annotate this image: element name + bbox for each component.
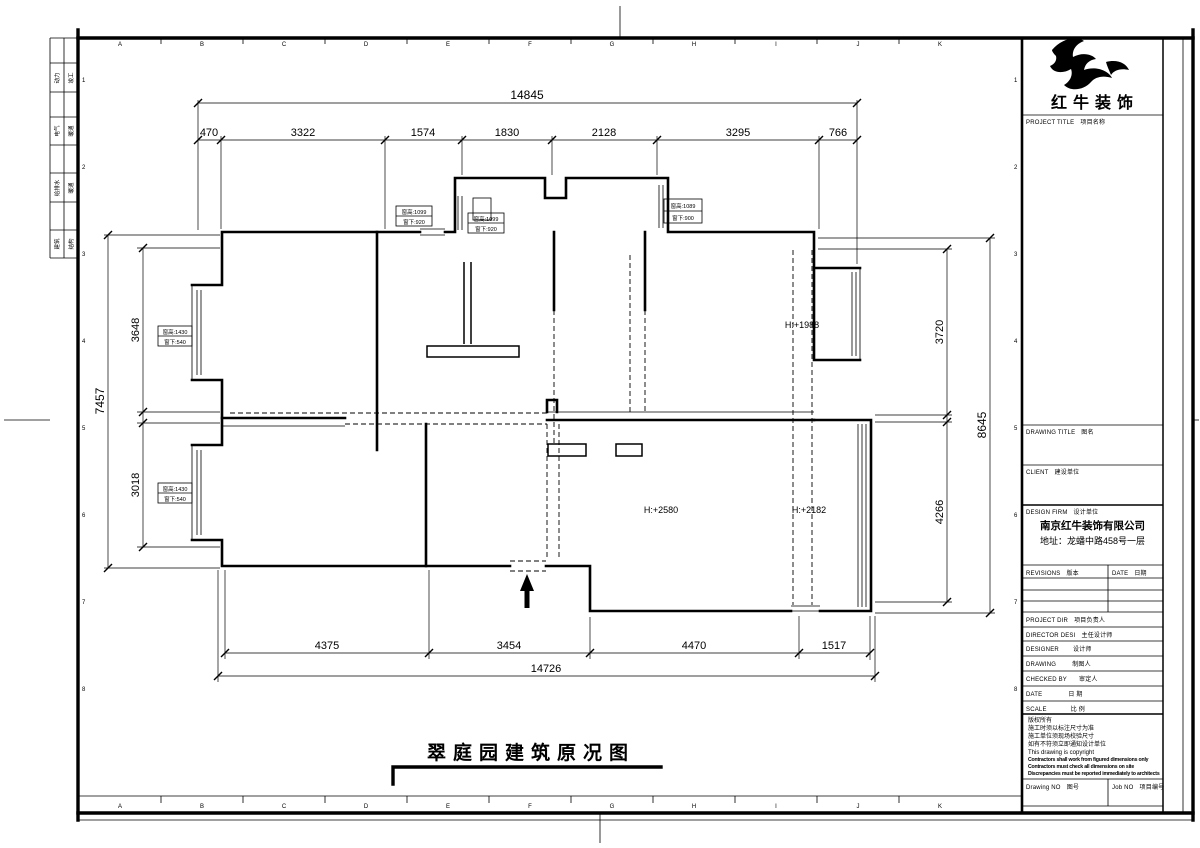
director-row: DIRECTOR DESI主任设计师: [1026, 630, 1113, 639]
ruler-number: 7: [82, 600, 86, 606]
window-tag-line: 窗高:1099: [474, 215, 499, 223]
ruler-letter: G: [610, 804, 615, 810]
label-en: PROJECT TITLE: [1026, 120, 1074, 126]
copyright-line: This drawing is copyright: [1028, 749, 1158, 757]
window-glass: [420, 185, 866, 611]
copyright-line-en: Contractors shall work from figured dime…: [1028, 757, 1158, 764]
dim-value: 470: [200, 127, 218, 139]
bay-window: [852, 268, 860, 360]
label-cn: 建设单位: [1055, 470, 1080, 476]
ruler-letter: C: [282, 804, 287, 810]
drawing-row: DRAWING制图人: [1026, 659, 1091, 668]
label-en: DESIGN FIRM: [1026, 510, 1068, 516]
ruler-letter: F: [528, 804, 532, 810]
ruler-letter: G: [610, 42, 615, 48]
label-cn: 项目编号: [1140, 785, 1165, 791]
ruler-letter: K: [938, 42, 942, 48]
label-en: DRAWING: [1026, 662, 1056, 668]
copyright-line: 施工单位须现场校验尺寸: [1028, 733, 1158, 741]
drawing-sheet: { "brand": { "company": "红牛装饰" }, "drawi…: [0, 0, 1200, 848]
copyright-line: 如有不符须立即通知设计单位: [1028, 741, 1158, 749]
ruler-number: 3: [1014, 252, 1018, 258]
dim-value: 766: [829, 127, 847, 139]
ruler-letter: J: [857, 804, 860, 810]
dim-value: 4470: [682, 640, 706, 652]
project-title-row: PROJECT TITLE项目名称: [1026, 117, 1105, 126]
ruler-number: 5: [1014, 426, 1018, 432]
ruler-number: 4: [1014, 339, 1018, 345]
dim-value: 1517: [822, 640, 846, 652]
interior-wall: [222, 232, 814, 566]
designer-row: DESIGNER设计师: [1026, 644, 1092, 653]
window-tag-line: 窗下:900: [672, 214, 694, 222]
date-col-header: DATE日期: [1112, 568, 1147, 577]
strip-label: 动力: [53, 72, 61, 83]
dim-value: 3295: [726, 127, 750, 139]
wall-stubs: [427, 198, 642, 456]
date-row: DATE日 期: [1026, 689, 1083, 698]
ruler-number: 5: [82, 426, 86, 432]
ruler-letter: H: [692, 804, 696, 810]
strip-label: 电气: [53, 125, 61, 137]
ruler-number: 1: [1014, 78, 1018, 84]
height-label: H:+2182: [792, 505, 826, 515]
window-tag-line: 窗下:920: [403, 218, 425, 226]
label-cn: 项目名称: [1080, 120, 1105, 126]
scale-row: SCALE比 例: [1026, 704, 1085, 713]
label-en: SCALE: [1026, 707, 1047, 713]
copyright-line: 施工时须以标注尺寸为准: [1028, 725, 1158, 733]
label-en: PROJECT DIR: [1026, 618, 1068, 624]
title-underline: [393, 767, 661, 784]
label-en: DESIGNER: [1026, 647, 1059, 653]
label-en: Job NO: [1112, 785, 1134, 791]
label-en: DATE: [1026, 692, 1042, 698]
bottom-ruler: A B C D E F G H I J K: [118, 796, 942, 810]
dim-value: 3720: [934, 320, 946, 344]
label-cn: 图号: [1067, 785, 1079, 791]
label-cn: 设计单位: [1074, 510, 1099, 516]
discipline-strip: 动力 竣工 电气 暖通 给排水 暖通 建筑 结构: [50, 38, 78, 258]
window-tag-line: 窗高:1089: [671, 202, 696, 210]
label-en: DRAWING TITLE: [1026, 430, 1075, 436]
window-tag: 窗高:1099 窗下:920: [396, 206, 432, 226]
job-no-cell: Job NO项目编号: [1112, 782, 1164, 791]
label-en: DIRECTOR DESI: [1026, 633, 1076, 639]
ruler-letter: C: [282, 42, 287, 48]
plan-title: 翠庭园建筑原况图: [427, 741, 635, 764]
label-cn: 设计师: [1073, 647, 1092, 653]
ruler-letter: I: [775, 42, 777, 48]
ruler-letter: E: [446, 804, 450, 810]
window-tag-line: 窗高:1430: [163, 485, 188, 493]
plan-title-group: 翠庭园建筑原况图: [393, 741, 661, 784]
window-tag: 窗高:1430 窗下:540: [158, 483, 192, 503]
label-cn: 日期: [1134, 571, 1146, 577]
ruler-letter: J: [857, 42, 860, 48]
ruler-number: 1: [82, 78, 86, 84]
window-tags: 窗高:1430 窗下:540 窗高:1430 窗下:540 窗高:1099 窗下…: [158, 199, 702, 503]
ruler-letter: D: [364, 42, 369, 48]
design-firm-name: 南京红牛装饰有限公司: [1022, 518, 1163, 533]
label-cn: 制图人: [1072, 662, 1091, 668]
label-cn: 版本: [1066, 571, 1078, 577]
strip-label: 给排水: [53, 179, 61, 196]
label-cn: 图名: [1081, 430, 1093, 436]
dim-value: 1830: [495, 127, 519, 139]
ruler-letter: A: [118, 42, 122, 48]
design-firm-row: DESIGN FIRM设计单位: [1026, 507, 1098, 516]
drawing-no-cell: Drawing NO图号: [1026, 782, 1079, 791]
dim-value: 3454: [497, 640, 521, 652]
label-en: Drawing NO: [1026, 785, 1061, 791]
windows: [192, 185, 866, 611]
window-tag-line: 窗下:540: [164, 495, 186, 503]
label-cn: 日 期: [1068, 692, 1082, 698]
ruler-number: 3: [82, 252, 86, 258]
label-cn: 主任设计师: [1082, 633, 1113, 639]
drawing-canvas: 动力 竣工 电气 暖通 给排水 暖通 建筑 结构 A B C D E F G H…: [0, 0, 1200, 848]
ruler-letter: A: [118, 804, 122, 810]
ruler-letter: B: [200, 42, 204, 48]
dim-value: 1574: [411, 127, 435, 139]
window-tag-line: 窗高:1099: [402, 208, 427, 216]
ruler-number: 8: [1014, 687, 1018, 693]
window-tag-line: 窗高:1430: [163, 328, 188, 336]
dim-value: 3322: [291, 127, 315, 139]
strip-label: 暖通: [67, 125, 75, 137]
label-cn: 比 例: [1071, 707, 1085, 713]
ruler-letter: K: [938, 804, 942, 810]
label-cn: 项目负责人: [1074, 618, 1105, 624]
dim-right-overall: 8645: [975, 411, 989, 438]
label-cn: 审定人: [1079, 677, 1098, 683]
copyright-line: 版权所有: [1028, 717, 1158, 725]
bay-window: [192, 285, 201, 540]
ruler-letter: D: [364, 804, 369, 810]
client-row: CLIENT建设单位: [1026, 467, 1079, 476]
bull-logo: [1050, 38, 1129, 89]
ruler-number: 8: [82, 687, 86, 693]
ruler-number: 4: [82, 339, 86, 345]
window-tag: 窗高:1430 窗下:540: [158, 326, 192, 346]
project-dir-row: PROJECT DIR项目负责人: [1026, 615, 1105, 624]
revisions-header: REVISIONS版本: [1026, 568, 1079, 577]
design-firm-address: 地址：龙蟠中路458号一层: [1022, 534, 1163, 547]
dim-value: 4375: [315, 640, 339, 652]
ruler-letter: H: [692, 42, 696, 48]
strip-label: 结构: [67, 238, 75, 250]
label-en: CLIENT: [1026, 470, 1049, 476]
floor-plan: H:+1988 H:+2580 H:+2182 窗高:1430 窗下:540 窗…: [158, 178, 871, 611]
ruler-letter: I: [775, 804, 777, 810]
height-label: H:+2580: [644, 505, 678, 515]
ruler-number: 2: [82, 165, 86, 171]
label-en: REVISIONS: [1026, 571, 1060, 577]
ruler-number: 2: [1014, 165, 1018, 171]
dim-bottom-overall: 14726: [531, 663, 562, 675]
ruler-number: 7: [1014, 600, 1018, 606]
dim-value: 4266: [934, 500, 946, 524]
dim-value: 3018: [130, 473, 142, 497]
ruler-number: 6: [82, 513, 86, 519]
entry-arrow: [520, 574, 534, 608]
dim-value: 3648: [130, 318, 142, 342]
checked-by-row: CHECKED BY审定人: [1026, 674, 1098, 683]
ruler-number: 6: [1014, 513, 1018, 519]
window-tag: 窗高:1089 窗下:900: [664, 199, 702, 223]
ruler-letter: F: [528, 42, 532, 48]
label-en: CHECKED BY: [1026, 677, 1067, 683]
window-tag-line: 窗下:540: [164, 338, 186, 346]
brand-name: 红牛装饰: [1051, 93, 1139, 112]
ruler-letter: E: [446, 42, 450, 48]
dim-value: 2128: [592, 127, 616, 139]
drawing-title-row: DRAWING TITLE图名: [1026, 427, 1094, 436]
copyright-line-en: Contractors must check all dimensions on…: [1028, 764, 1158, 771]
label-en: DATE: [1112, 571, 1128, 577]
dim-top-overall: 14845: [510, 88, 544, 102]
ruler-letter: B: [200, 804, 204, 810]
copyright-line-en: Discrepancies must be reported immediate…: [1028, 771, 1158, 778]
dashed-lines: [230, 250, 812, 605]
window-tag-line: 窗下:920: [475, 225, 497, 233]
strip-label: 建筑: [53, 238, 61, 250]
exterior-wall: [192, 178, 871, 611]
strip-label: 竣工: [67, 72, 75, 84]
dim-left-overall: 7457: [93, 387, 107, 414]
strip-label: 暖通: [67, 182, 75, 194]
copyright-notes: 版权所有 施工时须以标注尺寸为准 施工单位须现场校验尺寸 如有不符须立即通知设计…: [1028, 717, 1158, 778]
height-label: H:+1988: [785, 320, 819, 330]
